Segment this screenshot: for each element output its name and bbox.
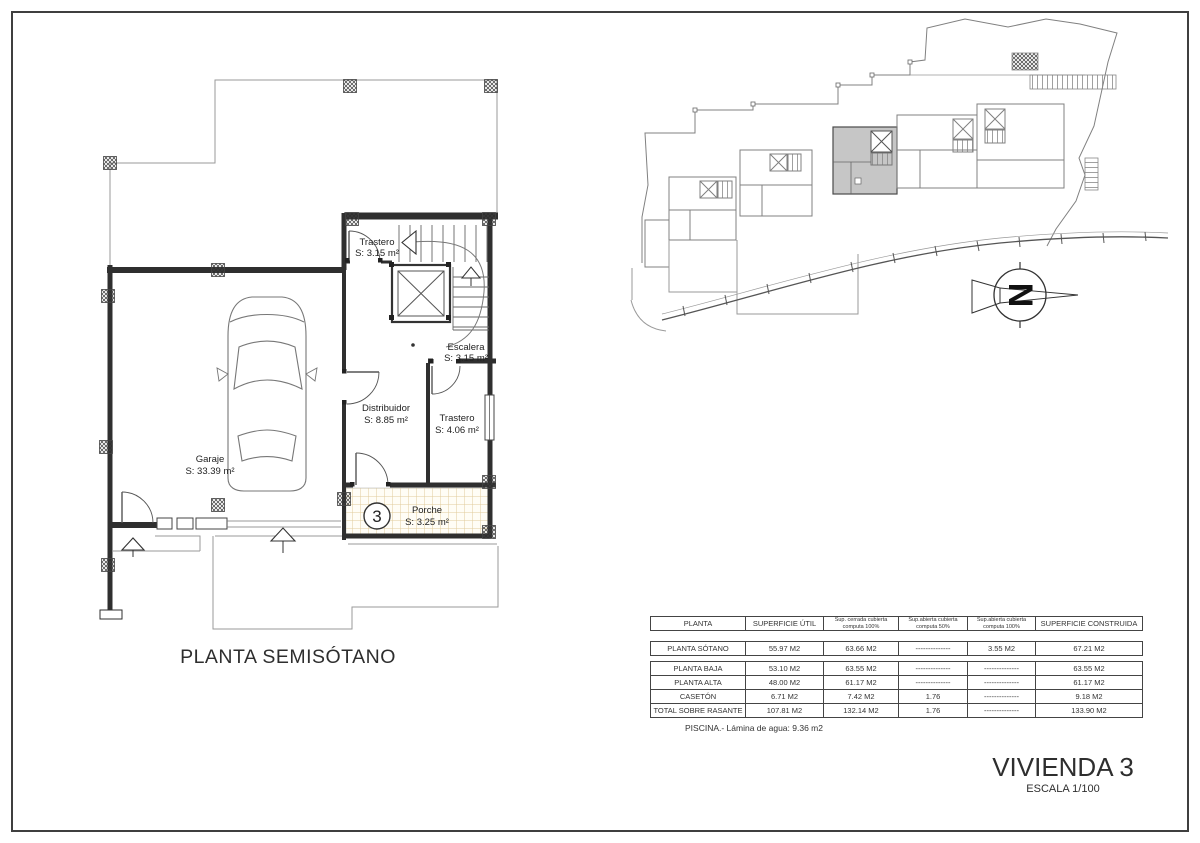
- cell-value: 55.97 M2: [746, 642, 824, 655]
- cell-value: --------------: [968, 676, 1036, 689]
- header-sup-abierta-50: Sup.abierta cubiertacomputa 50%: [899, 617, 968, 630]
- elevator-shaft: [389, 262, 451, 322]
- cell-value: 67.21 M2: [1036, 642, 1142, 655]
- cell-value: 133.90 M2: [1036, 704, 1142, 717]
- cell-value: 9.18 M2: [1036, 690, 1142, 703]
- cell-value: 132.14 M2: [824, 704, 899, 717]
- site-road: [662, 232, 1168, 320]
- sheet-title: VIVIENDA 3: [963, 752, 1163, 783]
- cell-value: 53.10 M2: [746, 662, 824, 675]
- cell-label: PLANTA BAJA: [651, 662, 746, 675]
- north-label: N: [1001, 283, 1039, 308]
- header-superficie-util: SUPERFICIE ÚTIL: [746, 617, 824, 630]
- header-sup-cerrada: Sup. cerrada cubiertacomputa 100%: [824, 617, 899, 630]
- room-label-porche: Porche: [412, 505, 442, 516]
- cell-value: 7.42 M2: [824, 690, 899, 703]
- table-row-caseton: CASETÓN 6.71 M2 7.42 M2 1.76 -----------…: [651, 689, 1142, 703]
- stair-guide-dot: [411, 343, 415, 347]
- room-label-escalera: Escalera: [448, 342, 486, 353]
- pool-note: PISCINA.- Lámina de agua: 9.36 m2: [685, 723, 823, 733]
- room-label-garaje: Garaje: [196, 454, 225, 465]
- cell-value: --------------: [899, 662, 968, 675]
- header-superficie-construida: SUPERFICIE CONSTRUIDA: [1036, 617, 1142, 630]
- room-area-trastero-1: S: 3.15 m²: [355, 248, 399, 259]
- cell-value: 6.71 M2: [746, 690, 824, 703]
- cell-value: 63.66 M2: [824, 642, 899, 655]
- cell-label: PLANTA SÓTANO: [651, 642, 746, 655]
- cell-label: PLANTA ALTA: [651, 676, 746, 689]
- car: [217, 297, 317, 491]
- cell-value: 61.17 M2: [1036, 676, 1142, 689]
- unit-number: 3: [372, 507, 381, 526]
- cell-value: 3.55 M2: [968, 642, 1036, 655]
- highlighted-unit: [833, 127, 897, 194]
- cell-value: 48.00 M2: [746, 676, 824, 689]
- cell-value: --------------: [899, 642, 968, 655]
- table-row-baja: PLANTA BAJA 53.10 M2 63.55 M2 ----------…: [651, 662, 1142, 675]
- sheet-scale: ESCALA 1/100: [963, 783, 1163, 795]
- table-row-alta: PLANTA ALTA 48.00 M2 61.17 M2 ----------…: [651, 675, 1142, 689]
- room-area-distribuidor: S: 8.85 m²: [364, 415, 408, 426]
- areas-table-header: PLANTA SUPERFICIE ÚTIL Sup. cerrada cubi…: [650, 616, 1143, 631]
- cell-value: --------------: [968, 662, 1036, 675]
- header-planta: PLANTA: [651, 617, 746, 630]
- cell-value: 1.76: [899, 690, 968, 703]
- cell-value: 1.76: [899, 704, 968, 717]
- room-label-distribuidor: Distribuidor: [362, 403, 410, 414]
- cell-value: --------------: [968, 704, 1036, 717]
- garage-door-opening: [157, 518, 341, 529]
- room-area-escalera: S: 3.15 m²: [444, 353, 488, 364]
- wall-step: [100, 610, 122, 619]
- cell-value: 63.55 M2: [1036, 662, 1142, 675]
- window: [485, 395, 494, 440]
- cell-value: 63.55 M2: [824, 662, 899, 675]
- header-sup-abierta-100: Sup.abierta cubiertacomputa 100%: [968, 617, 1036, 630]
- cell-value: 61.17 M2: [824, 676, 899, 689]
- cell-value: 107.81 M2: [746, 704, 824, 717]
- areas-table-body: PLANTA BAJA 53.10 M2 63.55 M2 ----------…: [650, 661, 1143, 718]
- floor-plan: 3 Trastero S: 3.15 m² Escalera S: 3.15 m…: [100, 80, 499, 630]
- site-plan: [631, 19, 1168, 331]
- cell-label: CASETÓN: [651, 690, 746, 703]
- cell-label: TOTAL SOBRE RASANTE: [651, 704, 746, 717]
- room-label-trastero-2: Trastero: [439, 413, 474, 424]
- north-arrow-icon: N: [972, 262, 1078, 328]
- drawing-sheet: 3 Trastero S: 3.15 m² Escalera S: 3.15 m…: [0, 0, 1200, 843]
- cell-value: --------------: [899, 676, 968, 689]
- room-label-trastero-1: Trastero: [359, 237, 394, 248]
- cell-value: --------------: [968, 690, 1036, 703]
- room-area-trastero-2: S: 4.06 m²: [435, 425, 479, 436]
- table-row-sotano: PLANTA SÓTANO 55.97 M2 63.66 M2 --------…: [650, 641, 1143, 656]
- floor-plan-title: PLANTA SEMISÓTANO: [160, 646, 416, 669]
- table-row-total: TOTAL SOBRE RASANTE 107.81 M2 132.14 M2 …: [651, 703, 1142, 717]
- site-terraces: [631, 240, 858, 331]
- room-area-garaje: S: 33.39 m²: [185, 466, 234, 477]
- room-area-porche: S: 3.25 m²: [405, 517, 449, 528]
